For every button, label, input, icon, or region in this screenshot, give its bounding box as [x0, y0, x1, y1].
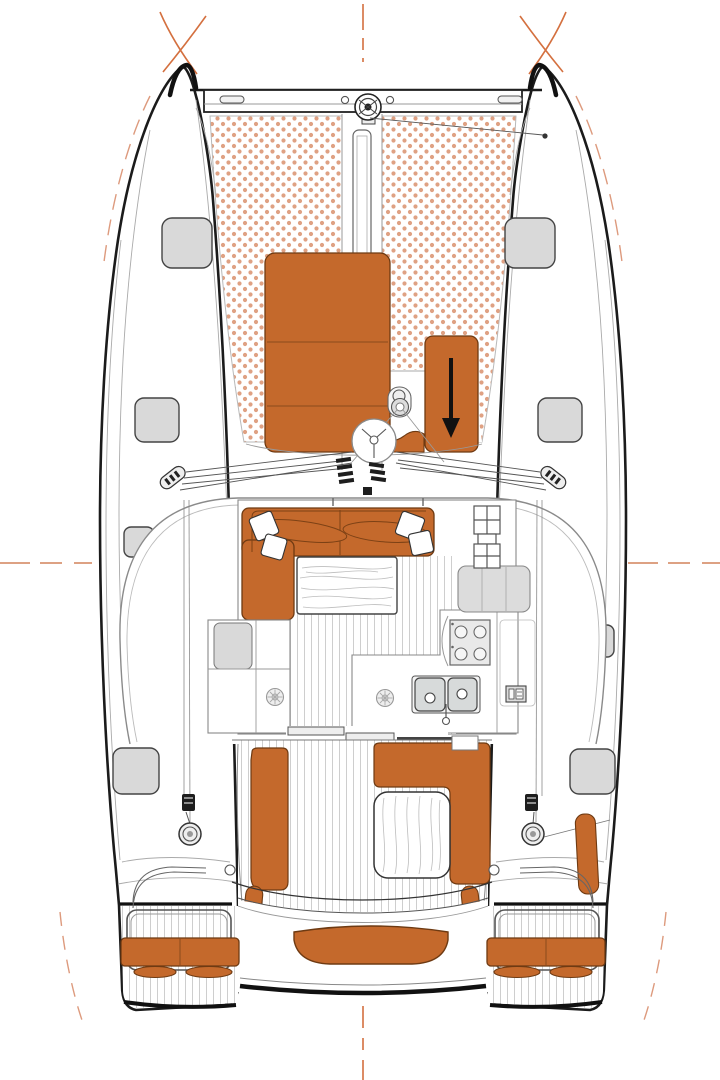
cockpit-table	[374, 792, 450, 878]
hatch-starboard-2	[538, 398, 582, 442]
hatch-starboard-1	[505, 218, 555, 268]
deck-plan-svg	[0, 0, 720, 1080]
hatch-port-1	[162, 218, 212, 268]
padeye	[542, 133, 547, 138]
control-panel	[506, 686, 526, 702]
aft-bench	[294, 926, 448, 964]
coachroof	[120, 498, 606, 744]
deck-plate-left	[267, 689, 284, 706]
starboard-counter	[458, 566, 530, 612]
hatch-starboard-4	[570, 749, 615, 794]
companionway-steps	[474, 506, 500, 568]
hatch-port-2	[135, 398, 179, 442]
deck-fitting-port	[225, 865, 235, 875]
salon-table	[297, 557, 397, 614]
deck-fitting-starboard	[489, 865, 499, 875]
port-step-cushion-1	[134, 967, 176, 978]
starboard-step-cushion-1	[494, 967, 540, 978]
starboard-swim-platform	[487, 904, 606, 1008]
anchor-windlass	[388, 387, 411, 417]
port-step-cushion-2	[186, 967, 232, 978]
cockpit-port-bench	[251, 748, 288, 890]
catamaran-deck-plan	[0, 0, 720, 1080]
deck-plate-center	[377, 690, 394, 707]
starboard-step-cushion-2	[550, 967, 592, 978]
hatch-port-4	[113, 748, 159, 794]
port-swim-platform	[120, 904, 239, 1008]
